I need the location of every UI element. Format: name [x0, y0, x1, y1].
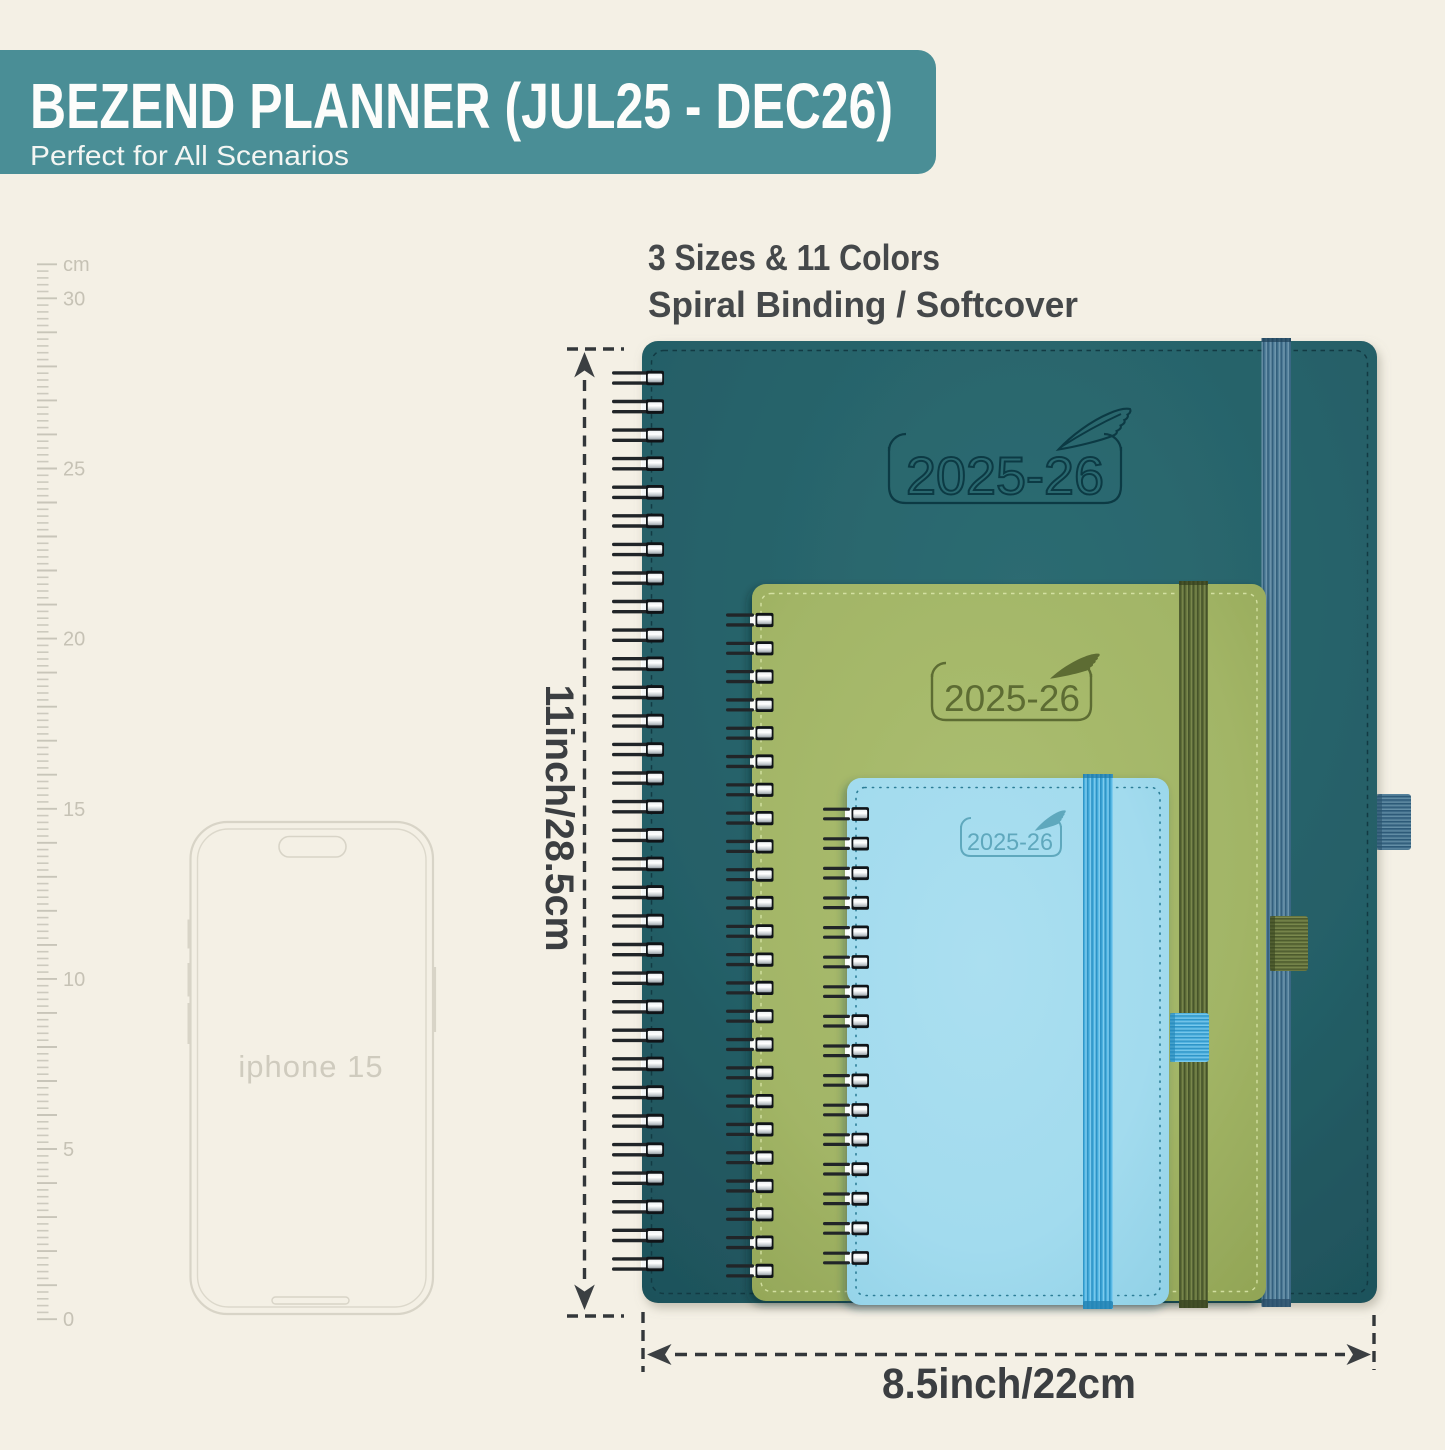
svg-text:5: 5: [63, 1139, 74, 1161]
svg-text:iphone 15: iphone 15: [238, 1049, 383, 1084]
svg-text:Spiral Binding / Softcover: Spiral Binding / Softcover: [648, 284, 1078, 325]
svg-text:10: 10: [63, 969, 85, 991]
svg-text:15: 15: [63, 799, 85, 821]
svg-text:20: 20: [63, 629, 85, 651]
svg-text:25: 25: [63, 459, 85, 481]
svg-text:2025-26: 2025-26: [967, 829, 1053, 856]
svg-text:30: 30: [63, 288, 85, 310]
svg-text:cm: cm: [63, 254, 90, 276]
svg-text:Perfect for All Scenarios: Perfect for All Scenarios: [30, 140, 349, 171]
svg-text:3 Sizes & 11 Colors: 3 Sizes & 11 Colors: [648, 237, 940, 278]
svg-text:2025-26: 2025-26: [944, 678, 1080, 719]
svg-text:0: 0: [63, 1309, 74, 1331]
svg-text:2025-26: 2025-26: [906, 447, 1104, 506]
svg-text:11inch/28.5cm: 11inch/28.5cm: [537, 685, 581, 952]
svg-text:8.5inch/22cm: 8.5inch/22cm: [882, 1360, 1136, 1408]
svg-text:BEZEND PLANNER (JUL25 - DEC26): BEZEND PLANNER (JUL25 - DEC26): [30, 70, 893, 142]
